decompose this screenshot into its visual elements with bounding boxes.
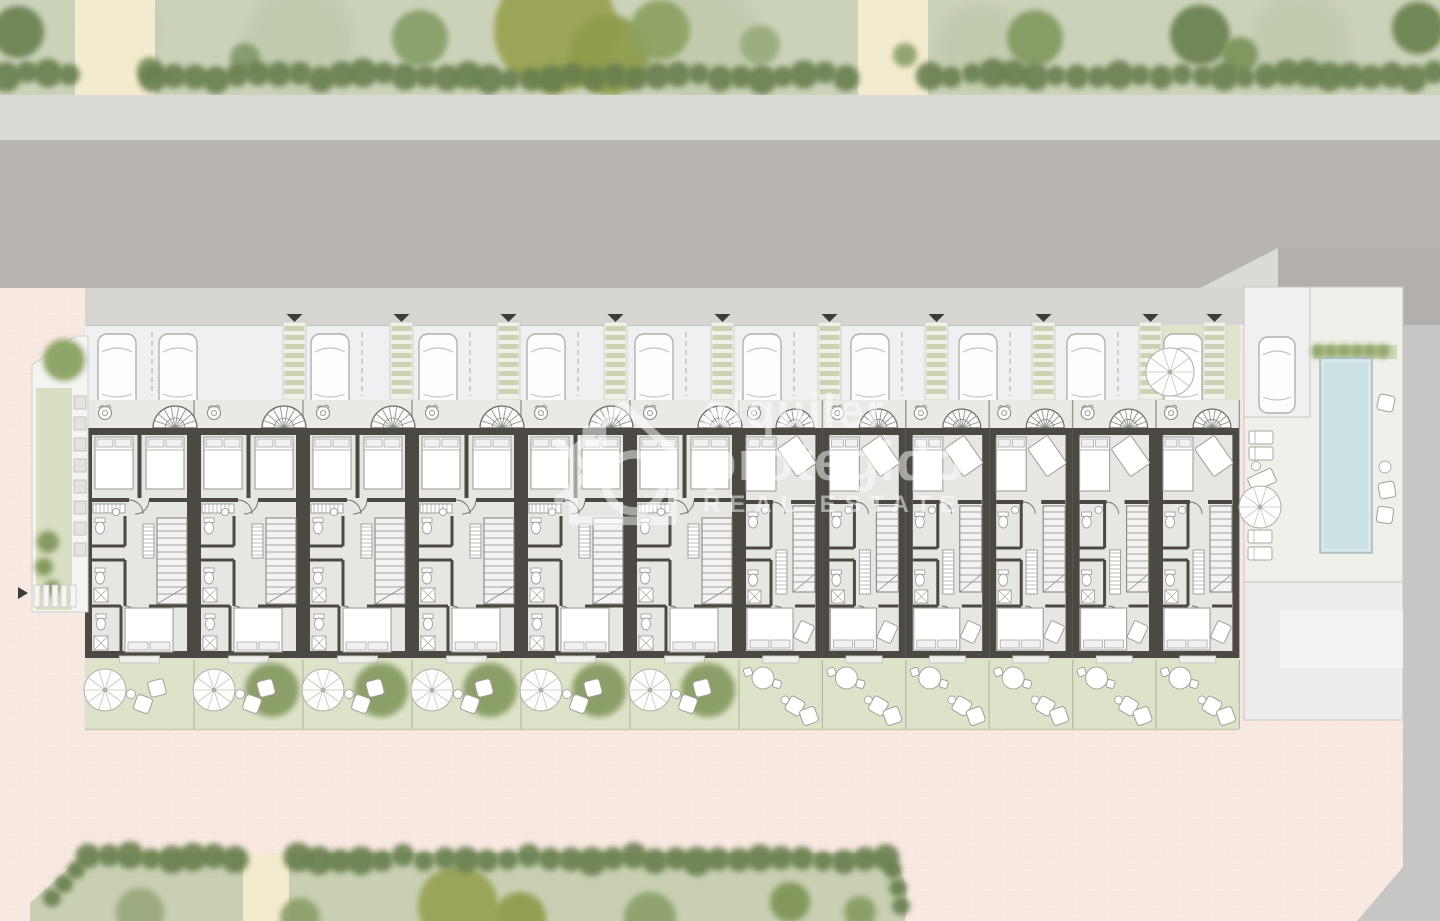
parked-car — [743, 334, 781, 410]
pergola-walkway — [390, 322, 413, 400]
parked-car — [1259, 337, 1295, 413]
pergola-walkway — [497, 322, 520, 400]
building-block — [89, 432, 1236, 664]
sidewalk-south — [85, 288, 1440, 325]
pergola-walkway — [283, 322, 306, 400]
parked-car — [635, 334, 673, 410]
parasol — [1239, 486, 1281, 528]
sidewalk-north — [0, 95, 1440, 140]
townhouse-unit-L3 — [307, 432, 409, 655]
townhouse-unit-L6 — [634, 432, 736, 655]
townhouse-unit-L5 — [525, 432, 627, 655]
parasol — [520, 669, 562, 711]
site-plan-drawing — [0, 0, 1440, 921]
townhouse-unit-L2 — [198, 432, 300, 655]
parked-car — [419, 334, 457, 410]
townhouse-unit-R5 — [1076, 432, 1152, 655]
pergola-walkway — [711, 322, 734, 400]
townhouse-unit-R2 — [826, 432, 902, 655]
pergola-walkway — [818, 322, 841, 400]
swimming-pool — [1320, 358, 1372, 553]
parked-car — [527, 334, 565, 410]
townhouse-unit-R4 — [993, 432, 1069, 655]
parasol — [193, 669, 235, 711]
street-road — [0, 140, 1440, 288]
parasol — [629, 669, 671, 711]
townhouse-unit-R1 — [743, 432, 819, 655]
parked-car — [98, 334, 136, 410]
parked-car — [1067, 334, 1105, 410]
townhouse-unit-R6 — [1160, 432, 1236, 655]
townhouse-unit-L4 — [416, 432, 518, 655]
pergola-walkway — [1203, 322, 1226, 400]
pergola-walkway — [604, 322, 627, 400]
entrance-strip — [85, 400, 1240, 428]
parasol — [84, 669, 126, 711]
parasol — [411, 669, 453, 711]
townhouse-unit-R3 — [909, 432, 985, 655]
pergola-walkway — [925, 322, 948, 400]
parasol — [302, 669, 344, 711]
parked-car — [959, 334, 997, 410]
parked-car — [311, 334, 349, 410]
parasol — [1146, 348, 1194, 396]
townhouse-unit-L1 — [89, 432, 191, 655]
parked-car — [851, 334, 889, 410]
pergola-walkway — [1032, 322, 1055, 400]
site-plan: alquiler protegido REAL ESTATE — [0, 0, 1440, 921]
parked-car — [159, 334, 197, 410]
